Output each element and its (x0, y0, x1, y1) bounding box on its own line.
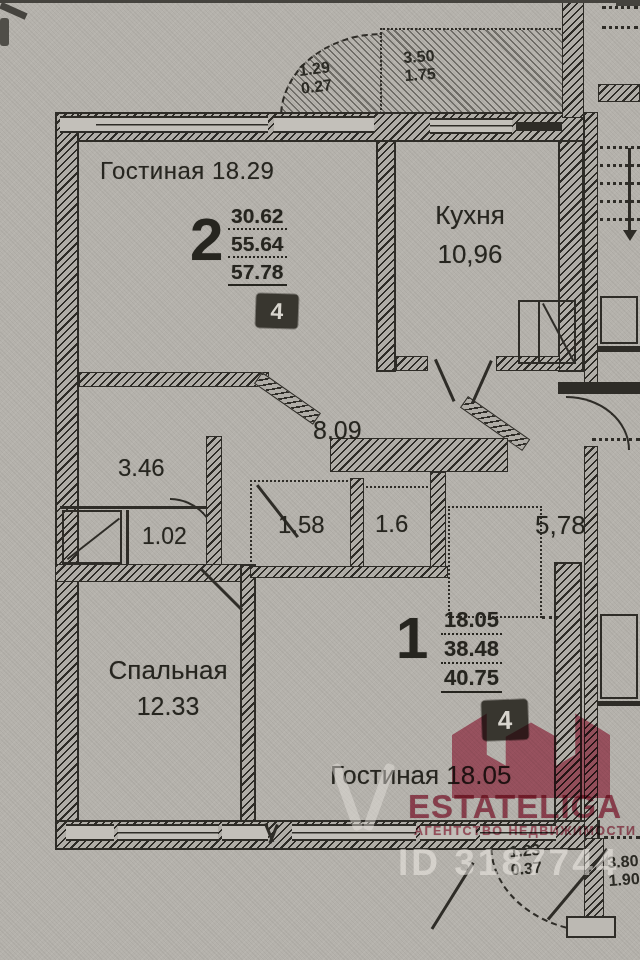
window-top-4 (430, 118, 512, 134)
bedroom-area: 12.33 (92, 692, 244, 721)
door-arc-entry (566, 396, 630, 450)
boundary-dotted (542, 616, 558, 619)
area-usable: 55.64 (228, 232, 287, 258)
balcony-top-curved (280, 33, 382, 117)
wall-kitchen-bottom-l (396, 356, 428, 371)
scan-corner-mark (616, 0, 640, 6)
area-living: 30.62 (228, 204, 287, 230)
room-label-bath: 1.02 (142, 523, 187, 550)
wall-left (55, 112, 79, 848)
chevron-bar (330, 762, 363, 831)
wall-bath-top (60, 506, 206, 509)
balcony-door-sill (516, 122, 562, 131)
kitchen-name: Кухня (408, 200, 532, 231)
stair-landing-lower (600, 614, 638, 699)
wall-hall346-right (206, 436, 222, 568)
apartment2-areas: 30.62 55.64 57.78 (228, 204, 287, 288)
wall-chamfer-a (254, 372, 321, 425)
bedroom-name: Спальная (92, 655, 244, 686)
wall-between-closets (350, 478, 364, 572)
room-label-closet-a: 1.58 (278, 511, 325, 539)
window-top-2 (96, 116, 268, 133)
area-living: 18.05 (441, 608, 502, 635)
area-usable: 38.48 (441, 637, 502, 664)
wall-topright-vert (562, 0, 584, 118)
dim-value: 0.27 (300, 76, 333, 98)
stair-step (600, 182, 640, 185)
wall-bedroom-top (55, 564, 251, 582)
watermark-chevron (336, 762, 396, 840)
watermark-tagline: АГЕНТСТВО НЕДВИЖИМОСТИ (414, 824, 636, 838)
room-label-kitchen: Кухня 10,96 (408, 200, 532, 270)
room-label-corridor: 8.09 (313, 416, 362, 445)
stair-step (600, 200, 640, 203)
balcony-top-curved-dims: 1.29 0.27 (298, 58, 333, 98)
room-label-living2: Гостиная 18.29 (100, 157, 274, 185)
stair-step (600, 146, 640, 149)
stair-slab (598, 346, 640, 352)
window-top-1 (60, 116, 96, 133)
room-label-hall-small: 3.46 (118, 454, 165, 482)
apartment2-badge: 4 (255, 293, 298, 328)
fixture-diagonal (67, 518, 120, 560)
scan-edge-top (0, 0, 640, 3)
apartment1-number: 1 (396, 612, 428, 664)
room-label-hall-apt1: 5,78 (535, 510, 586, 541)
wall-living2-kitchen (376, 140, 396, 372)
area-total: 40.75 (441, 666, 502, 693)
stair-direction-line (628, 148, 631, 232)
wardrobe-outline (448, 506, 542, 618)
fixture-divider (538, 302, 540, 362)
boundary-dotted (592, 438, 640, 441)
estateliga-logo-icon (452, 708, 610, 798)
dim-value: 3.50 (403, 47, 435, 68)
apartment1-areas: 18.05 38.48 40.75 (441, 608, 502, 695)
stairs-window (602, 6, 638, 9)
wall-entry-slab (558, 382, 640, 394)
bath-divider (126, 510, 129, 564)
area-total: 57.78 (228, 260, 287, 286)
wall-stair-left-upper (584, 112, 598, 386)
stair-arrow-icon (623, 230, 637, 241)
kitchen-fixture (518, 300, 576, 364)
watermark-brand: ESTATELIGA (408, 788, 622, 826)
wall-closetb-right (430, 472, 446, 572)
wall-foot (566, 916, 616, 938)
stair-step (600, 164, 640, 167)
wall-topright-horiz (598, 84, 640, 102)
dim-value: 1.75 (404, 65, 436, 86)
wall-living2-bottom (79, 372, 269, 387)
door-leaf (434, 359, 455, 402)
room-label-closet-b: 1.6 (375, 510, 408, 538)
window-bottom-1 (66, 824, 114, 841)
stair-landing (600, 296, 638, 344)
floorplan-scan: 1.29 0.27 3.50 1.75 (0, 0, 640, 960)
watermark-listing-id: ID 3187744 (398, 842, 619, 884)
balcony-top-main-dims: 3.50 1.75 (403, 47, 437, 86)
chevron-bar (362, 762, 395, 831)
stair-slab-lower (598, 701, 640, 706)
kitchen-area: 10,96 (408, 239, 532, 270)
window-top-3 (274, 116, 374, 133)
wall-living1-top (250, 566, 448, 578)
apartment2-number: 2 (190, 213, 223, 267)
stair-step (600, 218, 640, 221)
scan-corner-mark (0, 18, 9, 46)
window-bottom-3 (222, 824, 268, 841)
window-bottom-2 (118, 824, 218, 841)
fixture-diagonal (542, 303, 576, 364)
bath-fixture (62, 510, 122, 564)
room-label-bedroom: Спальная 12.33 (92, 655, 244, 721)
door-leaf (471, 360, 492, 403)
stairs-window (602, 26, 638, 29)
